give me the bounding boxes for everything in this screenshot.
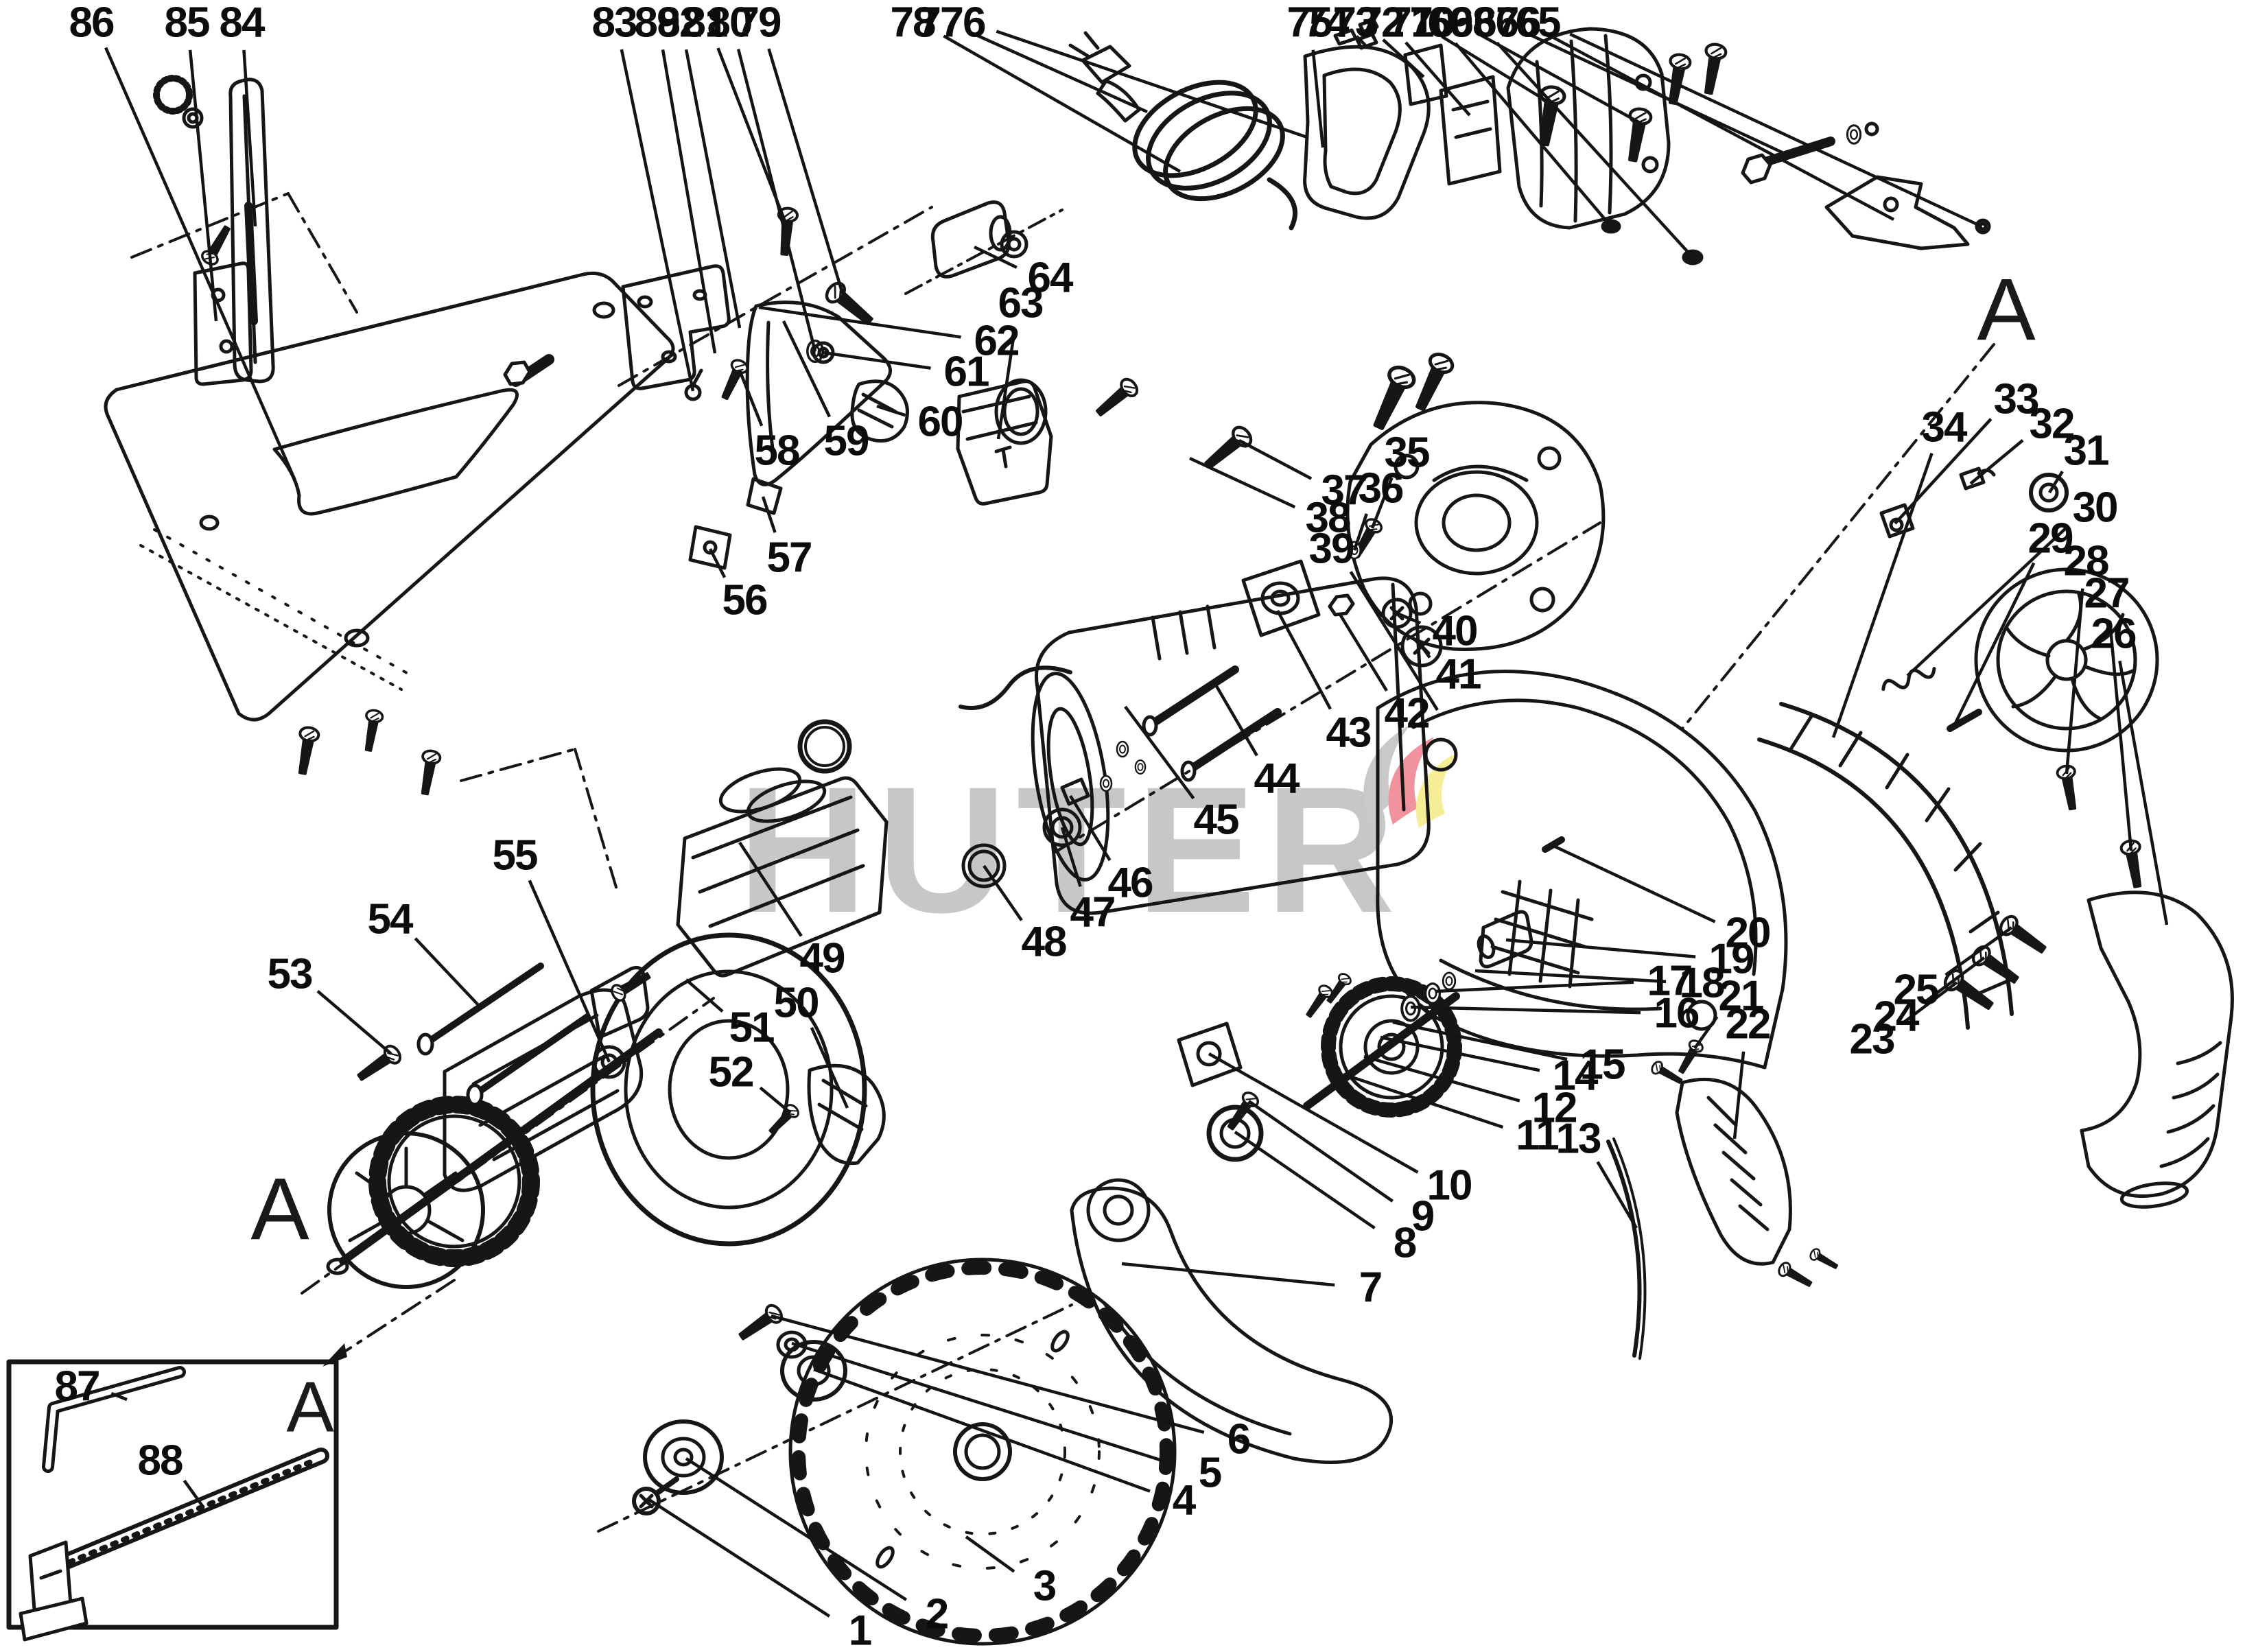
leader-line-47: [1062, 827, 1081, 886]
leader-line-85: [190, 50, 216, 321]
leader-line-64: [974, 247, 1017, 268]
part-label-59: 59: [824, 417, 869, 466]
leader-line-89: [663, 49, 715, 353]
part-label-1: 1: [849, 1607, 871, 1652]
leader-line-18: [1475, 971, 1666, 982]
leader-line-67: [1528, 34, 1791, 156]
part-label-85: 85: [165, 0, 209, 47]
leader-line-25: [1946, 928, 2012, 975]
section-marker-2: A: [286, 1367, 333, 1449]
leader-line-65: [1570, 34, 1982, 226]
leader-line-88: [185, 1480, 202, 1506]
leader-line-57: [763, 497, 775, 532]
part-label-44: 44: [1254, 755, 1299, 803]
leader-line-17: [1435, 982, 1634, 991]
part-label-4: 4: [1173, 1476, 1195, 1525]
leader-line-83: [622, 49, 693, 391]
leader-line-86: [106, 48, 295, 480]
leader-line-15: [1393, 1022, 1567, 1059]
leader-line-5: [792, 1343, 1175, 1465]
leader-line-38: [1190, 458, 1295, 507]
leader-line-75: [1313, 50, 1323, 147]
leader-line-40: [1397, 613, 1420, 623]
leader-line-43: [1278, 611, 1330, 709]
leader-line-14: [1380, 1037, 1540, 1070]
part-label-7: 7: [1359, 1264, 1381, 1312]
part-label-41: 41: [1436, 650, 1481, 699]
part-label-15: 15: [1580, 1041, 1625, 1089]
part-label-53: 53: [268, 950, 312, 999]
leader-line-55: [530, 880, 609, 1062]
leader-line-60: [877, 406, 906, 415]
part-label-75: 75: [1287, 0, 1332, 47]
leader-line-70: [1455, 43, 1611, 226]
part-label-20: 20: [1726, 909, 1770, 958]
leader-line-32: [1971, 440, 2023, 484]
part-label-6: 6: [1227, 1415, 1249, 1464]
leader-line-48: [984, 866, 1022, 921]
leader-line-52: [760, 1087, 790, 1113]
part-label-49: 49: [800, 934, 845, 983]
leader-line-46: [1070, 796, 1110, 860]
leader-line-58: [740, 370, 762, 426]
leader-line-19: [1506, 940, 1695, 957]
leader-line-7: [1122, 1264, 1335, 1285]
leader-line-44: [1214, 683, 1257, 755]
part-label-55: 55: [493, 831, 537, 880]
part-label-64: 64: [1028, 254, 1072, 303]
part-label-29: 29: [2028, 515, 2073, 563]
leader-line-72: [1406, 43, 1470, 115]
leader-line-34: [1833, 453, 1932, 737]
part-label-51: 51: [729, 1004, 774, 1052]
leader-line-79: [768, 49, 843, 294]
leader-line-6: [771, 1316, 1204, 1432]
part-label-33: 33: [1994, 375, 2038, 424]
leader-line-10: [1209, 1054, 1418, 1172]
leader-line-22: [1735, 1052, 1743, 1139]
section-marker-3: A: [1977, 260, 2035, 361]
leader-line-45: [1125, 707, 1194, 799]
part-label-50: 50: [774, 979, 819, 1028]
leader-line-37: [1239, 440, 1311, 479]
leader-line-16: [1411, 1007, 1641, 1013]
part-label-40: 40: [1433, 607, 1477, 656]
leader-line-84: [244, 50, 255, 226]
part-label-22: 22: [1726, 1000, 1770, 1049]
leader-line-68: [1497, 43, 1693, 257]
part-label-78: 78: [891, 0, 935, 47]
part-label-83: 83: [592, 0, 637, 47]
part-label-42: 42: [1385, 689, 1429, 738]
leader-line-31: [2049, 471, 2062, 493]
part-label-56: 56: [722, 576, 767, 625]
leader-line-78: [943, 36, 1180, 172]
leader-line-20: [1552, 845, 1715, 922]
leader-line-61: [823, 353, 930, 368]
part-label-10: 10: [1427, 1161, 1472, 1210]
leader-line-36: [1354, 514, 1367, 550]
part-label-58: 58: [755, 427, 799, 475]
part-label-84: 84: [220, 0, 264, 47]
part-label-34: 34: [1922, 403, 1966, 452]
part-label-87: 87: [55, 1362, 99, 1411]
leader-line-8: [1235, 1132, 1375, 1228]
part-label-52: 52: [709, 1048, 753, 1097]
leader-line-66: [1549, 36, 1894, 220]
leader-line-13: [1597, 1161, 1636, 1228]
leader-line-4: [814, 1369, 1150, 1491]
part-label-3: 3: [1033, 1562, 1055, 1611]
part-label-2: 2: [926, 1590, 948, 1639]
part-label-5: 5: [1199, 1449, 1221, 1498]
leader-line-28: [2067, 589, 2082, 774]
leader-line-82: [686, 49, 740, 328]
part-label-47: 47: [1070, 888, 1115, 937]
leader-line-2: [686, 1459, 906, 1600]
leader-line-59: [784, 321, 830, 417]
leader-line-3: [966, 1537, 1014, 1572]
part-label-88: 88: [138, 1437, 183, 1485]
leader-line-11: [1343, 1074, 1503, 1127]
leader-line-54: [415, 939, 480, 1007]
leader-line-76: [996, 32, 1307, 137]
part-label-89: 89: [635, 0, 679, 47]
part-label-39: 39: [1309, 525, 1354, 574]
leader-line-41: [1422, 646, 1430, 658]
part-label-57: 57: [767, 534, 812, 582]
leader-line-51: [686, 980, 722, 1011]
part-label-30: 30: [2073, 484, 2117, 532]
diagram-page: HUTER: [0, 0, 2245, 1652]
leader-line-56: [710, 549, 725, 578]
leader-line-12: [1364, 1057, 1520, 1101]
part-label-54: 54: [368, 895, 412, 944]
part-label-48: 48: [1022, 918, 1066, 967]
part-label-60: 60: [918, 398, 963, 447]
part-label-13: 13: [1556, 1115, 1601, 1164]
leader-line-53: [318, 991, 391, 1054]
part-label-86: 86: [69, 0, 114, 47]
part-label-43: 43: [1326, 709, 1371, 757]
leader-line-1: [649, 1500, 830, 1616]
part-label-25: 25: [1894, 966, 1938, 1015]
leader-line-42: [1339, 613, 1387, 691]
part-label-45: 45: [1194, 796, 1238, 845]
leader-lines-layer: [0, 0, 2245, 1652]
leader-line-49: [740, 842, 801, 936]
leader-line-50: [812, 1028, 847, 1108]
section-marker-1: A: [250, 1159, 309, 1260]
leader-line-87: [111, 1393, 127, 1400]
leader-line-29: [1954, 563, 2034, 726]
